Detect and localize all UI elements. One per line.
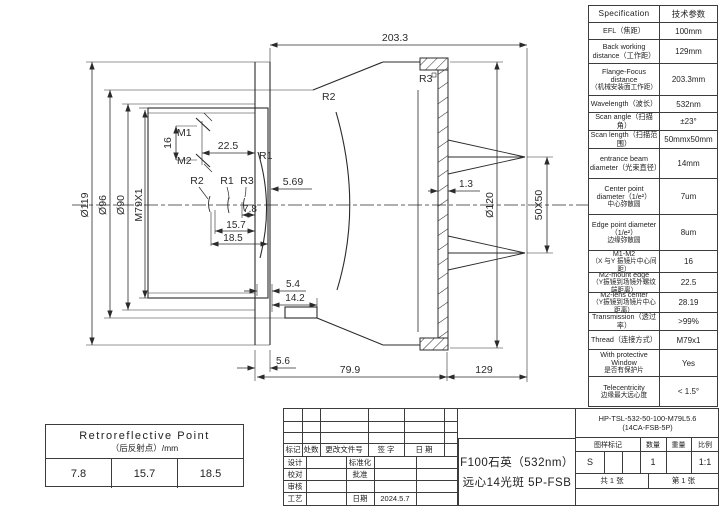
protective-window [418,58,448,350]
date-value: 2024.5.7 [374,492,416,505]
spec-row: Scan angle（扫描角）±23° [589,113,717,131]
spec-label-zh: （Y振镜到场镜片中心距离） [590,299,658,313]
stamp-section: HP-TSL-532-50-100-M79L5.6 (14CA-FSB-5P) … [575,409,718,505]
spec-label-en: Center point diameter（1/e²） [590,185,658,201]
spec-row: Thread（连接方式）M79x1 [589,331,717,350]
retro-title-en: Retroreflective Point [79,430,210,442]
spec-value: M79x1 [660,331,717,349]
spec-row: Flange-Focus distance（机械安装面工作距）203.3mm [589,64,717,96]
spec-value: 203.3mm [660,64,717,95]
spec-value: 28.19 [660,293,717,312]
retro-title-zh: （后反射点）/mm [111,442,179,454]
spec-row: With protective Window是否有保护片Yes [589,350,717,377]
spec-label: entrance beam diameter（光束直径） [589,149,660,178]
rev-header-count: 处数 [302,443,320,456]
sheet-number: 第 1 张 [648,473,719,488]
part-number-line2: (14CA-FSB-5P) [622,423,672,432]
role-check: 校对 [284,468,306,480]
spec-label-en: Thread（连接方式） [591,336,657,344]
rev-header-sign: 签 字 [368,443,404,456]
spec-value: 14mm [660,149,717,178]
role-date-label: 日期 [346,492,374,505]
spec-value: 50mmx50mm [660,131,717,148]
spec-row: Back working distance（工作距）129mm [589,40,717,64]
stamp-scale-value: 1:1 [691,451,719,473]
lens-surfaces [199,112,350,290]
spec-label: M2-lens center（Y振镜到场镜片中心距离） [589,293,660,312]
spec-label-en: Edge point diameter（1/e²） [590,221,658,237]
spec-value: < 1.5° [660,377,717,406]
spec-label: Center point diameter（1/e²）中心弥散圆 [589,179,660,214]
spec-label: Edge point diameter（1/e²）边缘弥散圆 [589,215,660,250]
spec-table: Specification技术参数EFL（焦距）100mmBack workin… [588,5,718,407]
dim-5-69: 5.69 [283,176,304,188]
spec-label-en: Back working distance（工作距） [590,43,658,59]
drawing-sheet: 203.3 Ø119 Ø96 Ø90 M79X1 16 22.5 M1 M2 R… [0,0,720,509]
retro-value: 18.5 [177,459,243,488]
spec-label-en: Specification [599,9,650,18]
stamp-header-scale: 比例 [691,438,719,451]
spec-label: EFL（焦距） [589,23,660,39]
spec-label-en: Wavelength（波长） [591,100,657,108]
spec-label: With protective Window是否有保护片 [589,350,660,376]
mirror-m2 [196,154,210,167]
spec-row: M2-lens center（Y振镜到场镜片中心距离）28.19 [589,293,717,313]
galvo-mirrors [196,113,212,172]
r3-square-mark [432,73,436,77]
spec-label-zh: （X 与Y 振镜片中心间距） [590,258,658,273]
spec-label-en: Telecentricity [603,384,645,392]
spec-value: Yes [660,350,717,376]
label-r2-group: R2 [190,175,204,187]
spec-label-zh: （机械安装面工作距） [591,84,657,92]
spec-row: Edge point diameter（1/e²）边缘弥散圆8um [589,215,717,251]
dimension-lines [92,45,547,377]
dim-18-5: 18.5 [223,233,243,244]
spec-value: 100mm [660,23,717,39]
spec-label-zh: 边缘弥散圆 [608,237,641,245]
spec-label-en: EFL（焦距） [603,27,645,35]
retro-value: 7.8 [46,459,111,488]
stamp-header-mark: 图样标记 [576,438,640,451]
retro-table-header: Retroreflective Point （后反射点）/mm [46,425,243,459]
spec-label: Back working distance（工作距） [589,40,660,63]
spec-label: Flange-Focus distance（机械安装面工作距） [589,64,660,95]
window-glass [438,70,448,338]
drawing-title-cell: F100石英（532nm） 远心14光斑 5P-FSB [458,438,575,505]
extension-lines [86,48,553,382]
spec-row: entrance beam diameter（光束直径）14mm [589,149,717,179]
rev-header-date: 日 期 [404,443,444,456]
stamp-weight-value [666,451,691,473]
spec-value: ±23° [660,113,717,130]
dimension-labels: 203.3 Ø119 Ø96 Ø90 M79X1 16 22.5 M1 M2 R… [79,32,545,376]
sheets-total: 共 1 张 [576,473,648,488]
retro-table: Retroreflective Point （后反射点）/mm 7.8 15.7… [45,424,244,487]
title-block: 标记 处数 更改文件号 签 字 日 期 设计 校对 审核 工艺 标准化 批准 日… [283,408,719,506]
dim-thread: M79X1 [133,188,145,221]
label-r2-main: R2 [322,91,336,103]
spec-value: 8um [660,215,717,250]
spec-label: Telecentricity边缘最大远心度 [589,377,660,406]
drawing-title-line1: F100石英（532nm） [460,454,574,470]
spec-value: 7um [660,179,717,214]
spec-row: M1-M2（X 与Y 振镜片中心间距）16 [589,251,717,273]
spec-label-en: Scan angle（扫描角） [590,113,658,129]
spec-row: Specification技术参数 [589,6,717,23]
spec-value: 22.5 [660,273,717,292]
spec-label: Scan angle（扫描角） [589,113,660,130]
dim-dia96: Ø96 [97,195,109,215]
retro-values-row: 7.8 15.7 18.5 [46,459,243,488]
rev-header-mark: 标记 [284,443,302,456]
spec-label-en: Flange-Focus distance [590,68,658,84]
part-number-cell: HP-TSL-532-50-100-M79L5.6 (14CA-FSB-5P) [576,409,719,438]
role-standardize: 标准化 [346,456,374,468]
surface-r2 [336,112,350,290]
label-r1-front: R1 [259,150,273,162]
part-number-line1: HP-TSL-532-50-100-M79L5.6 [599,414,697,423]
dim-mirror-gap: 16 [162,137,174,149]
window-mount-top [420,58,448,70]
role-design: 设计 [284,456,306,468]
stamp-header-weight: 重量 [666,438,691,451]
role-review: 审核 [284,480,306,492]
dim-14-2: 14.2 [285,293,305,304]
spec-row: Scan length（扫描范围）50mmx50mm [589,131,717,149]
mount-step [285,307,317,318]
label-r3-group: R3 [240,175,254,187]
barrel-outline [148,108,268,298]
stamp-qty-value: 1 [640,451,666,473]
dim-79-9: 79.9 [340,364,361,376]
spec-label-en: Scan length（扫描范围） [590,131,658,147]
spec-label-zh: 中心弥散圆 [608,201,641,209]
dim-scan-field: 50X50 [533,190,545,221]
spec-row: Wavelength（波长）532nm [589,96,717,113]
dim-22-5: 22.5 [218,140,239,152]
spec-label-zh: 边缘最大远心度 [601,392,647,400]
spec-value: >99% [660,313,717,330]
spec-label-en: M1-M2 [613,251,635,258]
spec-row: Telecentricity边缘最大远心度< 1.5° [589,377,717,406]
stamp-header-qty: 数量 [640,438,666,451]
spec-label: Specification [589,6,660,22]
spec-row: EFL（焦距）100mm [589,23,717,40]
mirror-m1 [196,118,210,131]
dim-129: 129 [475,364,493,376]
spec-label-en: With protective Window [590,351,658,367]
dim-dia119: Ø119 [79,192,91,217]
window-mount-bottom [420,338,448,350]
label-m2: M2 [177,155,192,167]
dim-dia120: Ø120 [484,192,496,218]
role-approve: 批准 [346,468,374,480]
drawing-title-line2: 远心14光斑 5P-FSB [463,474,572,490]
dim-7-8: 7.8 [243,204,257,215]
role-process: 工艺 [284,492,306,505]
dim-1-3: 1.3 [459,179,473,190]
spec-label: Transmission（透过率） [589,313,660,330]
spec-label: Scan length（扫描范围） [589,131,660,148]
spec-label-en: entrance beam diameter（光束直径） [590,155,658,171]
dim-total-length: 203.3 [382,32,408,44]
spec-value: 532nm [660,96,717,112]
spec-label: Thread（连接方式） [589,331,660,349]
spec-value: 129mm [660,40,717,63]
spec-row: M2-mount edge（Y振镜到场镜外螺纹端距离）22.5 [589,273,717,293]
dim-15-7: 15.7 [226,220,246,231]
label-r3-window: R3 [419,73,433,85]
spec-label-zh: （Y振镜到场镜外螺纹端距离） [590,279,658,293]
dim-dia90: Ø90 [115,195,127,215]
retro-value: 15.7 [111,459,177,488]
spec-label: Wavelength（波长） [589,96,660,112]
spec-value: 16 [660,251,717,272]
surface-r2-vertex [209,196,211,212]
spec-label: M2-mount edge（Y振镜到场镜外螺纹端距离） [589,273,660,292]
dim-5-4: 5.4 [286,279,300,290]
spec-label-en: Transmission（透过率） [590,313,658,329]
stamp-mark-value: S [576,451,604,473]
label-r1-group: R1 [220,175,234,187]
spec-row: Center point diameter（1/e²）中心弥散圆7um [589,179,717,215]
spec-row: Transmission（透过率）>99% [589,313,717,331]
label-m1: M1 [177,127,192,139]
spec-value: 技术参数 [660,6,717,22]
rev-header-docno: 更改文件号 [320,443,368,456]
lens-body-outline [148,62,420,345]
spec-label-zh: 是否有保护片 [604,367,644,375]
spec-label: M1-M2（X 与Y 振镜片中心间距） [589,251,660,272]
dim-5-6: 5.6 [276,356,290,367]
